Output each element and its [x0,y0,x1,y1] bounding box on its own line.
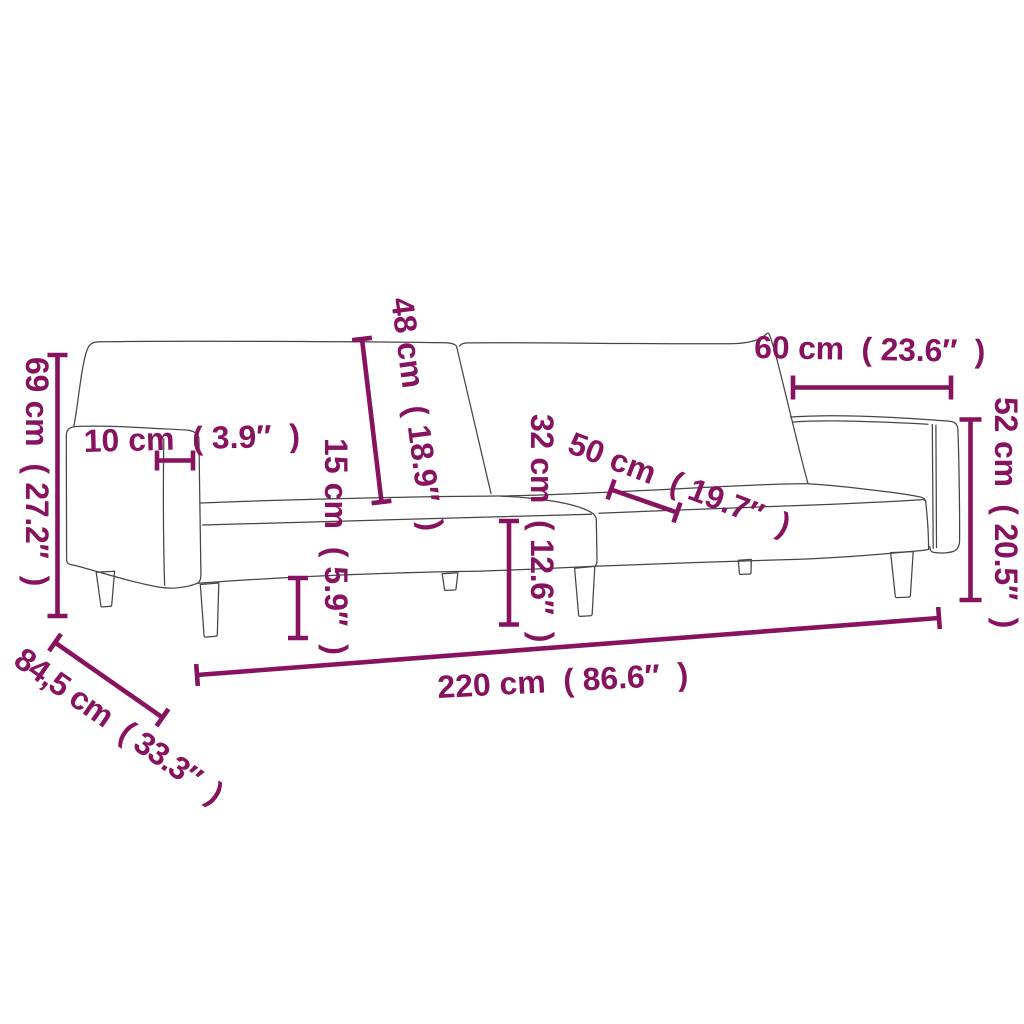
svg-text:15 cm ( 5.9″ ): 15 cm ( 5.9″ ) [318,438,354,655]
svg-text:69 cm ( 27.2″ ): 69 cm ( 27.2″ ) [19,357,55,586]
svg-text:10 cm ( 3.9″ ): 10 cm ( 3.9″ ) [83,417,300,459]
svg-text:52 cm ( 20.5″ ): 52 cm ( 20.5″ ) [988,397,1024,628]
svg-text:60 cm ( 23.6″ ): 60 cm ( 23.6″ ) [754,329,986,369]
svg-text:32 cm ( 12.6″ ): 32 cm ( 12.6″ ) [524,414,560,642]
